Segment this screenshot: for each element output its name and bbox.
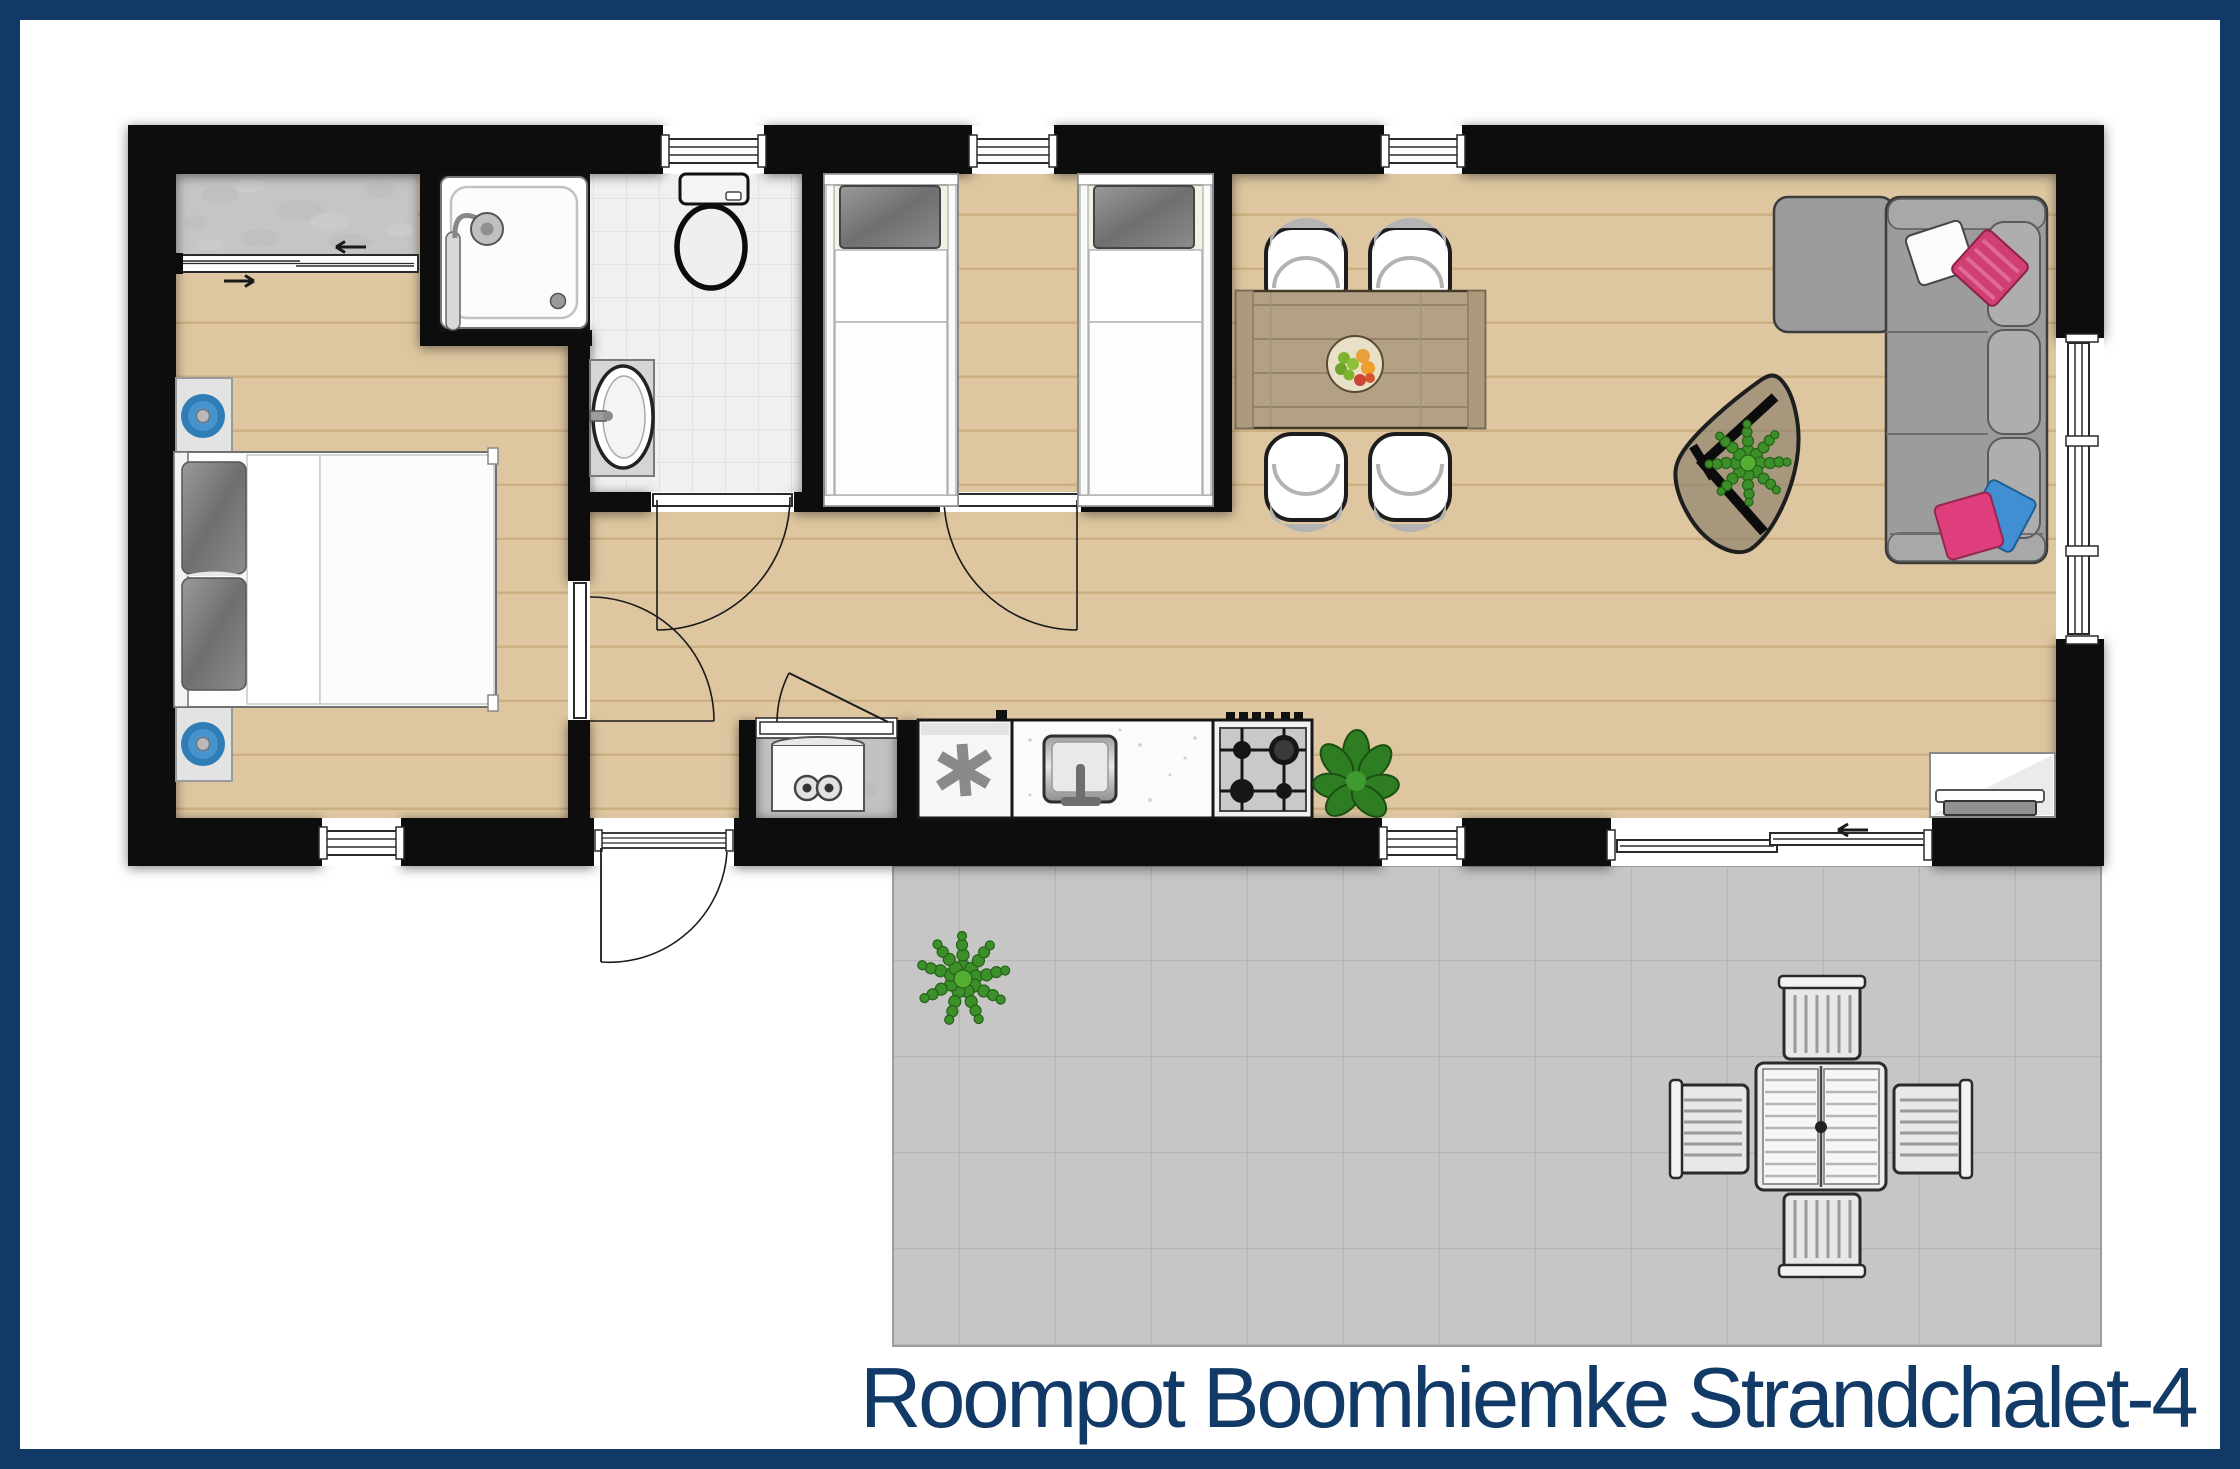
svg-text:Roompot Boomhiemke Strandchale: Roompot Boomhiemke Strandchalet-4: [860, 1351, 2196, 1446]
